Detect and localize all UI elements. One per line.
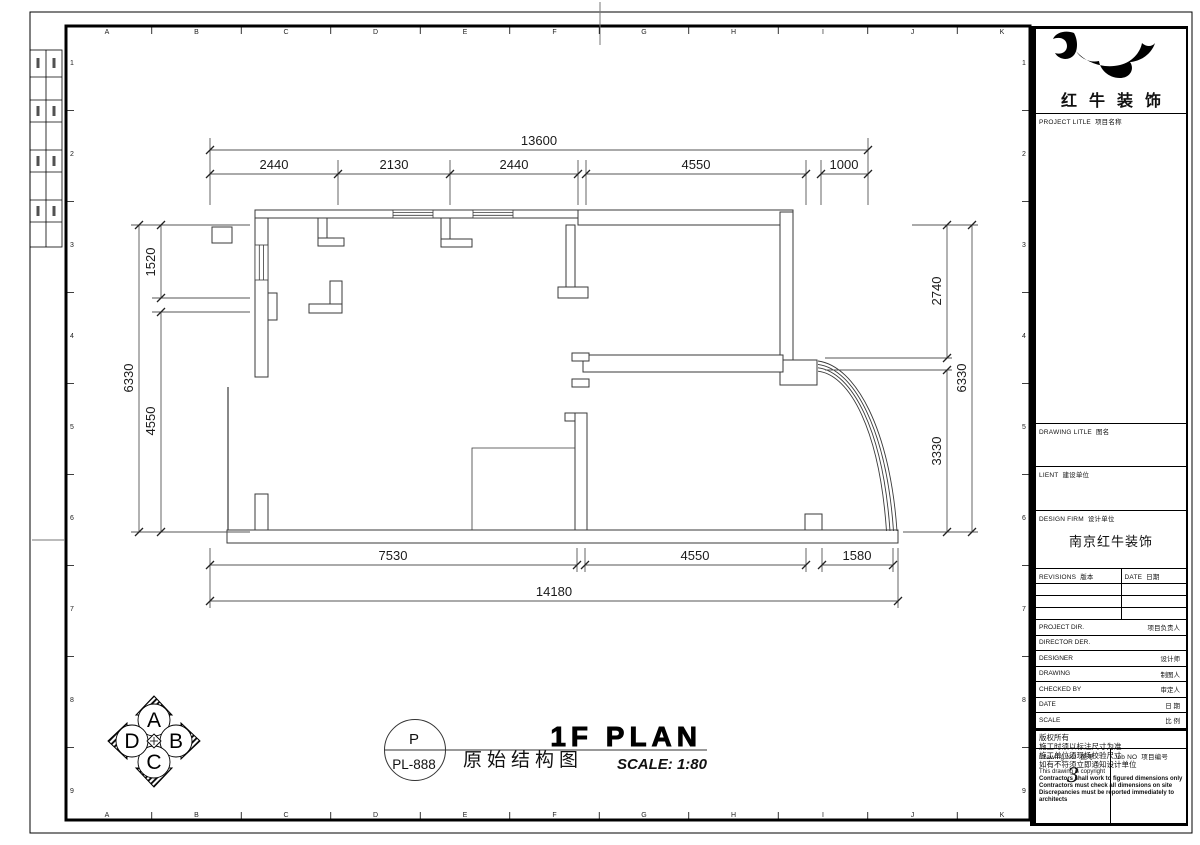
dim-left-seg: 4550 xyxy=(143,407,158,436)
info-row-designer: DESIGNER 设计师 xyxy=(1036,651,1186,667)
col-label: C xyxy=(283,29,288,36)
orientation-compass: A B C D xyxy=(108,696,200,787)
col-label: G xyxy=(641,29,646,36)
info-label-cn: 比 例 xyxy=(1165,715,1186,725)
dim-bottom-total: 14180 xyxy=(536,584,572,599)
project-label-cn: 项目名称 xyxy=(1095,119,1122,126)
compass-letter-a: A xyxy=(147,709,161,732)
col-label: I xyxy=(822,812,824,819)
plan-title-cn: 原始结构图 xyxy=(463,749,583,771)
row-label: 5 xyxy=(1022,424,1026,431)
client-field: LIENT 建设单位 xyxy=(1036,467,1186,511)
info-row-scale: SCALE 比 例 xyxy=(1036,713,1186,729)
col-label: B xyxy=(194,812,199,819)
info-label-en: CHECKED BY xyxy=(1036,686,1081,693)
col-label: K xyxy=(1000,812,1005,819)
col-label: J xyxy=(911,29,915,36)
dim-bottom-seg: 1580 xyxy=(843,548,872,563)
info-label-cn: 审定人 xyxy=(1161,684,1187,694)
col-label: H xyxy=(731,812,736,819)
company-name: 红牛装饰 xyxy=(1036,87,1186,111)
plan-title-en: 1F PLAN xyxy=(550,721,702,752)
project-label-en: PROJECT LITLE xyxy=(1039,119,1091,126)
company-logo-section: 红牛装饰 xyxy=(1036,29,1186,114)
info-label-en: SCALE xyxy=(1036,717,1060,724)
drawing-title-label-cn: 图名 xyxy=(1096,429,1109,436)
info-label-cn: 设计师 xyxy=(1161,653,1187,663)
revisions-label-cn: 版本 xyxy=(1080,574,1093,581)
row-label: 2 xyxy=(1022,151,1026,158)
floor-plan-canvas: A B C D E F G H I J K A B C D E F G H I … xyxy=(0,0,1200,845)
dim-bottom-seg: 4550 xyxy=(681,548,710,563)
row-label: 1 xyxy=(1022,60,1026,67)
revision-row-cell xyxy=(1122,608,1187,620)
signature-strip xyxy=(30,50,62,247)
info-row-checked-by: CHECKED BY 审定人 xyxy=(1036,682,1186,698)
row-label: 8 xyxy=(70,697,74,704)
compass-letter-d: D xyxy=(124,730,139,753)
col-label: I xyxy=(822,29,824,36)
client-label-en: LIENT xyxy=(1039,472,1058,479)
info-label-en: DATE xyxy=(1036,701,1056,708)
revision-row-cell xyxy=(1122,584,1187,596)
revision-row-cell xyxy=(1036,608,1122,620)
drawing-number-row: Drawing NO 图号 3 Job NO 项目编号 xyxy=(1036,748,1186,823)
col-label: E xyxy=(463,812,468,819)
col-label: C xyxy=(283,812,288,819)
design-firm-value: 南京红牛装饰 xyxy=(1036,531,1186,550)
col-label: H xyxy=(731,29,736,36)
row-label: 3 xyxy=(70,242,74,249)
drawing-title-field: DRAWING LITLE 图名 xyxy=(1036,424,1186,467)
date-col-label-en: DATE xyxy=(1125,574,1143,581)
note-line: 版权所有 xyxy=(1039,733,1183,742)
row-label: 2 xyxy=(70,151,74,158)
project-title-field: PROJECT LITLE 项目名称 xyxy=(1036,114,1186,424)
revision-row-cell xyxy=(1036,584,1122,596)
drawing-no-label-cn: 图号 xyxy=(1080,754,1093,761)
dim-bottom-seg: 7530 xyxy=(379,548,408,563)
col-label: K xyxy=(1000,29,1005,36)
drawing-sheet: A B C D E F G H I J K A B C D E F G H I … xyxy=(0,0,1200,845)
row-label: 9 xyxy=(70,788,74,795)
revisions-table: REVISIONS 版本 DATE 日期 xyxy=(1036,569,1186,620)
dim-top-seg: 1000 xyxy=(830,157,859,172)
plan-scale-label: SCALE: 1:80 xyxy=(617,756,708,773)
title-block: 红牛装饰 PROJECT LITLE 项目名称 DRAWING LITLE 图名… xyxy=(1030,26,1188,826)
info-label-cn: 日 期 xyxy=(1165,700,1186,710)
sheet-borders xyxy=(30,2,1192,833)
job-no-label-cn: 项目编号 xyxy=(1141,754,1168,761)
col-label: E xyxy=(463,29,468,36)
info-label-cn: 项目负责人 xyxy=(1148,622,1187,632)
dim-top-seg: 4550 xyxy=(682,157,711,172)
info-row-date: DATE 日 期 xyxy=(1036,698,1186,714)
col-label: A xyxy=(105,812,110,819)
col-label: F xyxy=(552,29,556,36)
design-firm-label-en: DESIGN FIRM xyxy=(1039,516,1084,523)
revisions-label-en: REVISIONS xyxy=(1039,574,1076,581)
info-label-cn: 制图人 xyxy=(1161,669,1187,679)
row-label: 7 xyxy=(1022,606,1026,613)
dimension-labels: 13600 2440 2130 2440 4550 1000 6330 1520… xyxy=(121,133,969,599)
col-label: D xyxy=(373,812,378,819)
info-label-en: PROJECT DIR. xyxy=(1036,624,1084,631)
dim-left-seg: 1520 xyxy=(143,248,158,277)
row-label: 6 xyxy=(70,515,74,522)
row-label: 5 xyxy=(70,424,74,431)
info-label-en: DIRECTOR DER. xyxy=(1036,639,1090,646)
row-label: 4 xyxy=(1022,333,1026,340)
info-row-project-dir: PROJECT DIR. 项目负责人 xyxy=(1036,620,1186,636)
dim-left-total: 6330 xyxy=(121,364,136,393)
compass-letter-b: B xyxy=(169,730,183,753)
col-label: D xyxy=(373,29,378,36)
drawing-no-cell: Drawing NO 图号 3 xyxy=(1036,749,1111,823)
row-label: 3 xyxy=(1022,242,1026,249)
row-label: 4 xyxy=(70,333,74,340)
dim-right-total: 6330 xyxy=(954,364,969,393)
col-label: G xyxy=(641,812,646,819)
job-no-cell: Job NO 项目编号 xyxy=(1111,749,1186,823)
dim-top-seg: 2440 xyxy=(500,157,529,172)
ref-bubble-code: P xyxy=(409,731,419,748)
col-label: F xyxy=(552,812,556,819)
info-label-en: DESIGNER xyxy=(1036,655,1073,662)
drawing-title-area: P PL-888 1F PLAN 原始结构图 SCALE: 1:80 xyxy=(385,720,708,781)
date-col-label-cn: 日期 xyxy=(1146,574,1159,581)
job-no-label-en: Job NO xyxy=(1114,754,1137,761)
design-firm-label-cn: 设计单位 xyxy=(1088,516,1115,523)
dim-right-seg: 3330 xyxy=(929,437,944,466)
row-label: 6 xyxy=(1022,515,1026,522)
col-label: A xyxy=(105,29,110,36)
row-label: 7 xyxy=(70,606,74,613)
row-label: 8 xyxy=(1022,697,1026,704)
client-label-cn: 建设单位 xyxy=(1062,472,1089,479)
col-label: J xyxy=(911,812,915,819)
info-label-en: DRAWING xyxy=(1036,670,1070,677)
design-firm-field: DESIGN FIRM 设计单位 南京红牛装饰 xyxy=(1036,511,1186,569)
drawing-no-label-en: Drawing NO xyxy=(1039,754,1076,761)
dim-right-seg: 2740 xyxy=(929,277,944,306)
col-label: B xyxy=(194,29,199,36)
bull-logo-icon xyxy=(1036,29,1186,87)
ref-bubble-number: PL-888 xyxy=(392,757,436,772)
drawing-title-label-en: DRAWING LITLE xyxy=(1039,429,1092,436)
compass-letter-c: C xyxy=(146,751,161,774)
drawing-no-value: 3 xyxy=(1036,763,1110,787)
revision-row-cell xyxy=(1122,596,1187,608)
dim-top-seg: 2130 xyxy=(380,157,409,172)
row-label: 1 xyxy=(70,60,74,67)
revision-row-cell xyxy=(1036,596,1122,608)
info-row-drawing: DRAWING 制图人 xyxy=(1036,667,1186,683)
floor-plan-walls xyxy=(212,210,898,543)
row-label: 9 xyxy=(1022,788,1026,795)
dim-top-seg: 2440 xyxy=(260,157,289,172)
dim-top-total: 13600 xyxy=(521,133,557,148)
info-row-director: DIRECTOR DER. xyxy=(1036,636,1186,652)
